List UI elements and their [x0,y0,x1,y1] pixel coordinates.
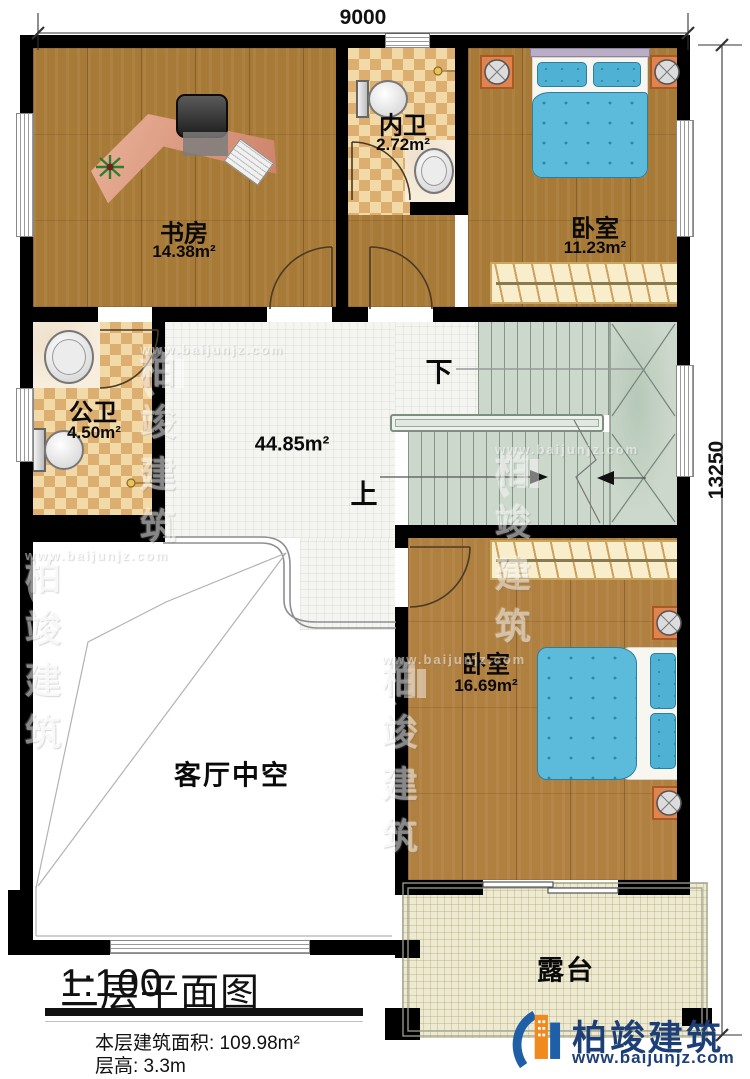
wall [677,35,690,120]
wall [158,307,267,322]
title-rule-thin [45,1021,363,1022]
stairs-down-label: 下 [426,351,453,390]
brand-logo-url: www.baijunjz.com [572,1048,735,1068]
title-rule-thick [45,1008,363,1016]
stair-handrail [390,414,604,432]
pillow [593,62,641,87]
inner-sink-basin [421,156,447,186]
wardrobe-rail [496,282,682,285]
wall [618,880,690,895]
window [16,388,34,462]
wall [677,237,690,365]
wall [20,515,165,542]
brand-logo: 柏竣建筑 www.baijunjz.com [508,1004,743,1072]
study-floor [33,48,336,307]
living-void-label: 客厅中空 [174,754,290,793]
wall [395,538,408,548]
desk-pad [183,132,228,156]
bedroom-bottom-label: 卧室 [462,645,510,680]
pillow [537,62,587,87]
dimension-right: 13250 [705,441,729,499]
hall-area: 44.85m² [255,434,330,457]
bedroom-top-area: 11.23m² [564,238,626,258]
bedroom-bottom-area: 16.69m² [454,676,517,696]
bed-mattress [532,92,648,178]
public-sink-basin [52,339,86,375]
wall [20,35,385,48]
inner-bath-doorway-floor [348,202,410,215]
stairs-upper-flight [478,322,610,415]
wall [385,1008,420,1040]
bed-mattress [537,647,637,780]
wall [455,48,468,215]
wall [20,35,33,115]
nightstand [480,55,514,89]
wall [8,890,20,955]
hall-floor-lower [300,538,395,630]
window [110,940,310,954]
bed-headboard [530,48,650,57]
terrace-label: 露台 [537,949,595,988]
wardrobe-rail [496,559,682,562]
wall [332,307,368,322]
window [385,33,430,48]
wall [20,307,98,322]
wall [430,35,690,48]
wall [395,880,483,895]
stairs-lower-flight [408,432,610,525]
plan-title-scale: 1:100 [60,962,163,1006]
window [676,120,694,237]
study-area: 14.38m² [152,242,215,262]
public-bath-area: 4.50m² [67,423,121,443]
stairs-landing [610,322,677,525]
wall [152,307,165,542]
window [676,365,694,477]
wall [310,940,395,955]
floor-height-text: 层高: 3.3m [95,1051,186,1078]
wall [395,940,420,958]
wall [410,202,468,215]
stairs-up-label: 上 [351,473,378,512]
window [16,113,34,237]
dimension-top: 9000 [340,6,387,30]
wall [677,477,690,895]
corridor-floor [348,215,455,307]
brand-logo-icon [508,1006,568,1070]
wall [395,525,690,538]
wall [395,607,408,880]
pillow [650,713,676,769]
inner-bath-area: 2.72m² [376,135,430,155]
pillow [650,653,676,709]
wall [20,940,110,955]
wall [433,307,690,322]
floor-plan: 书房 14.38m² 内卫 2.72m² 卧室 11.23m² 公卫 4.50m… [0,0,750,1079]
wall [336,48,348,322]
